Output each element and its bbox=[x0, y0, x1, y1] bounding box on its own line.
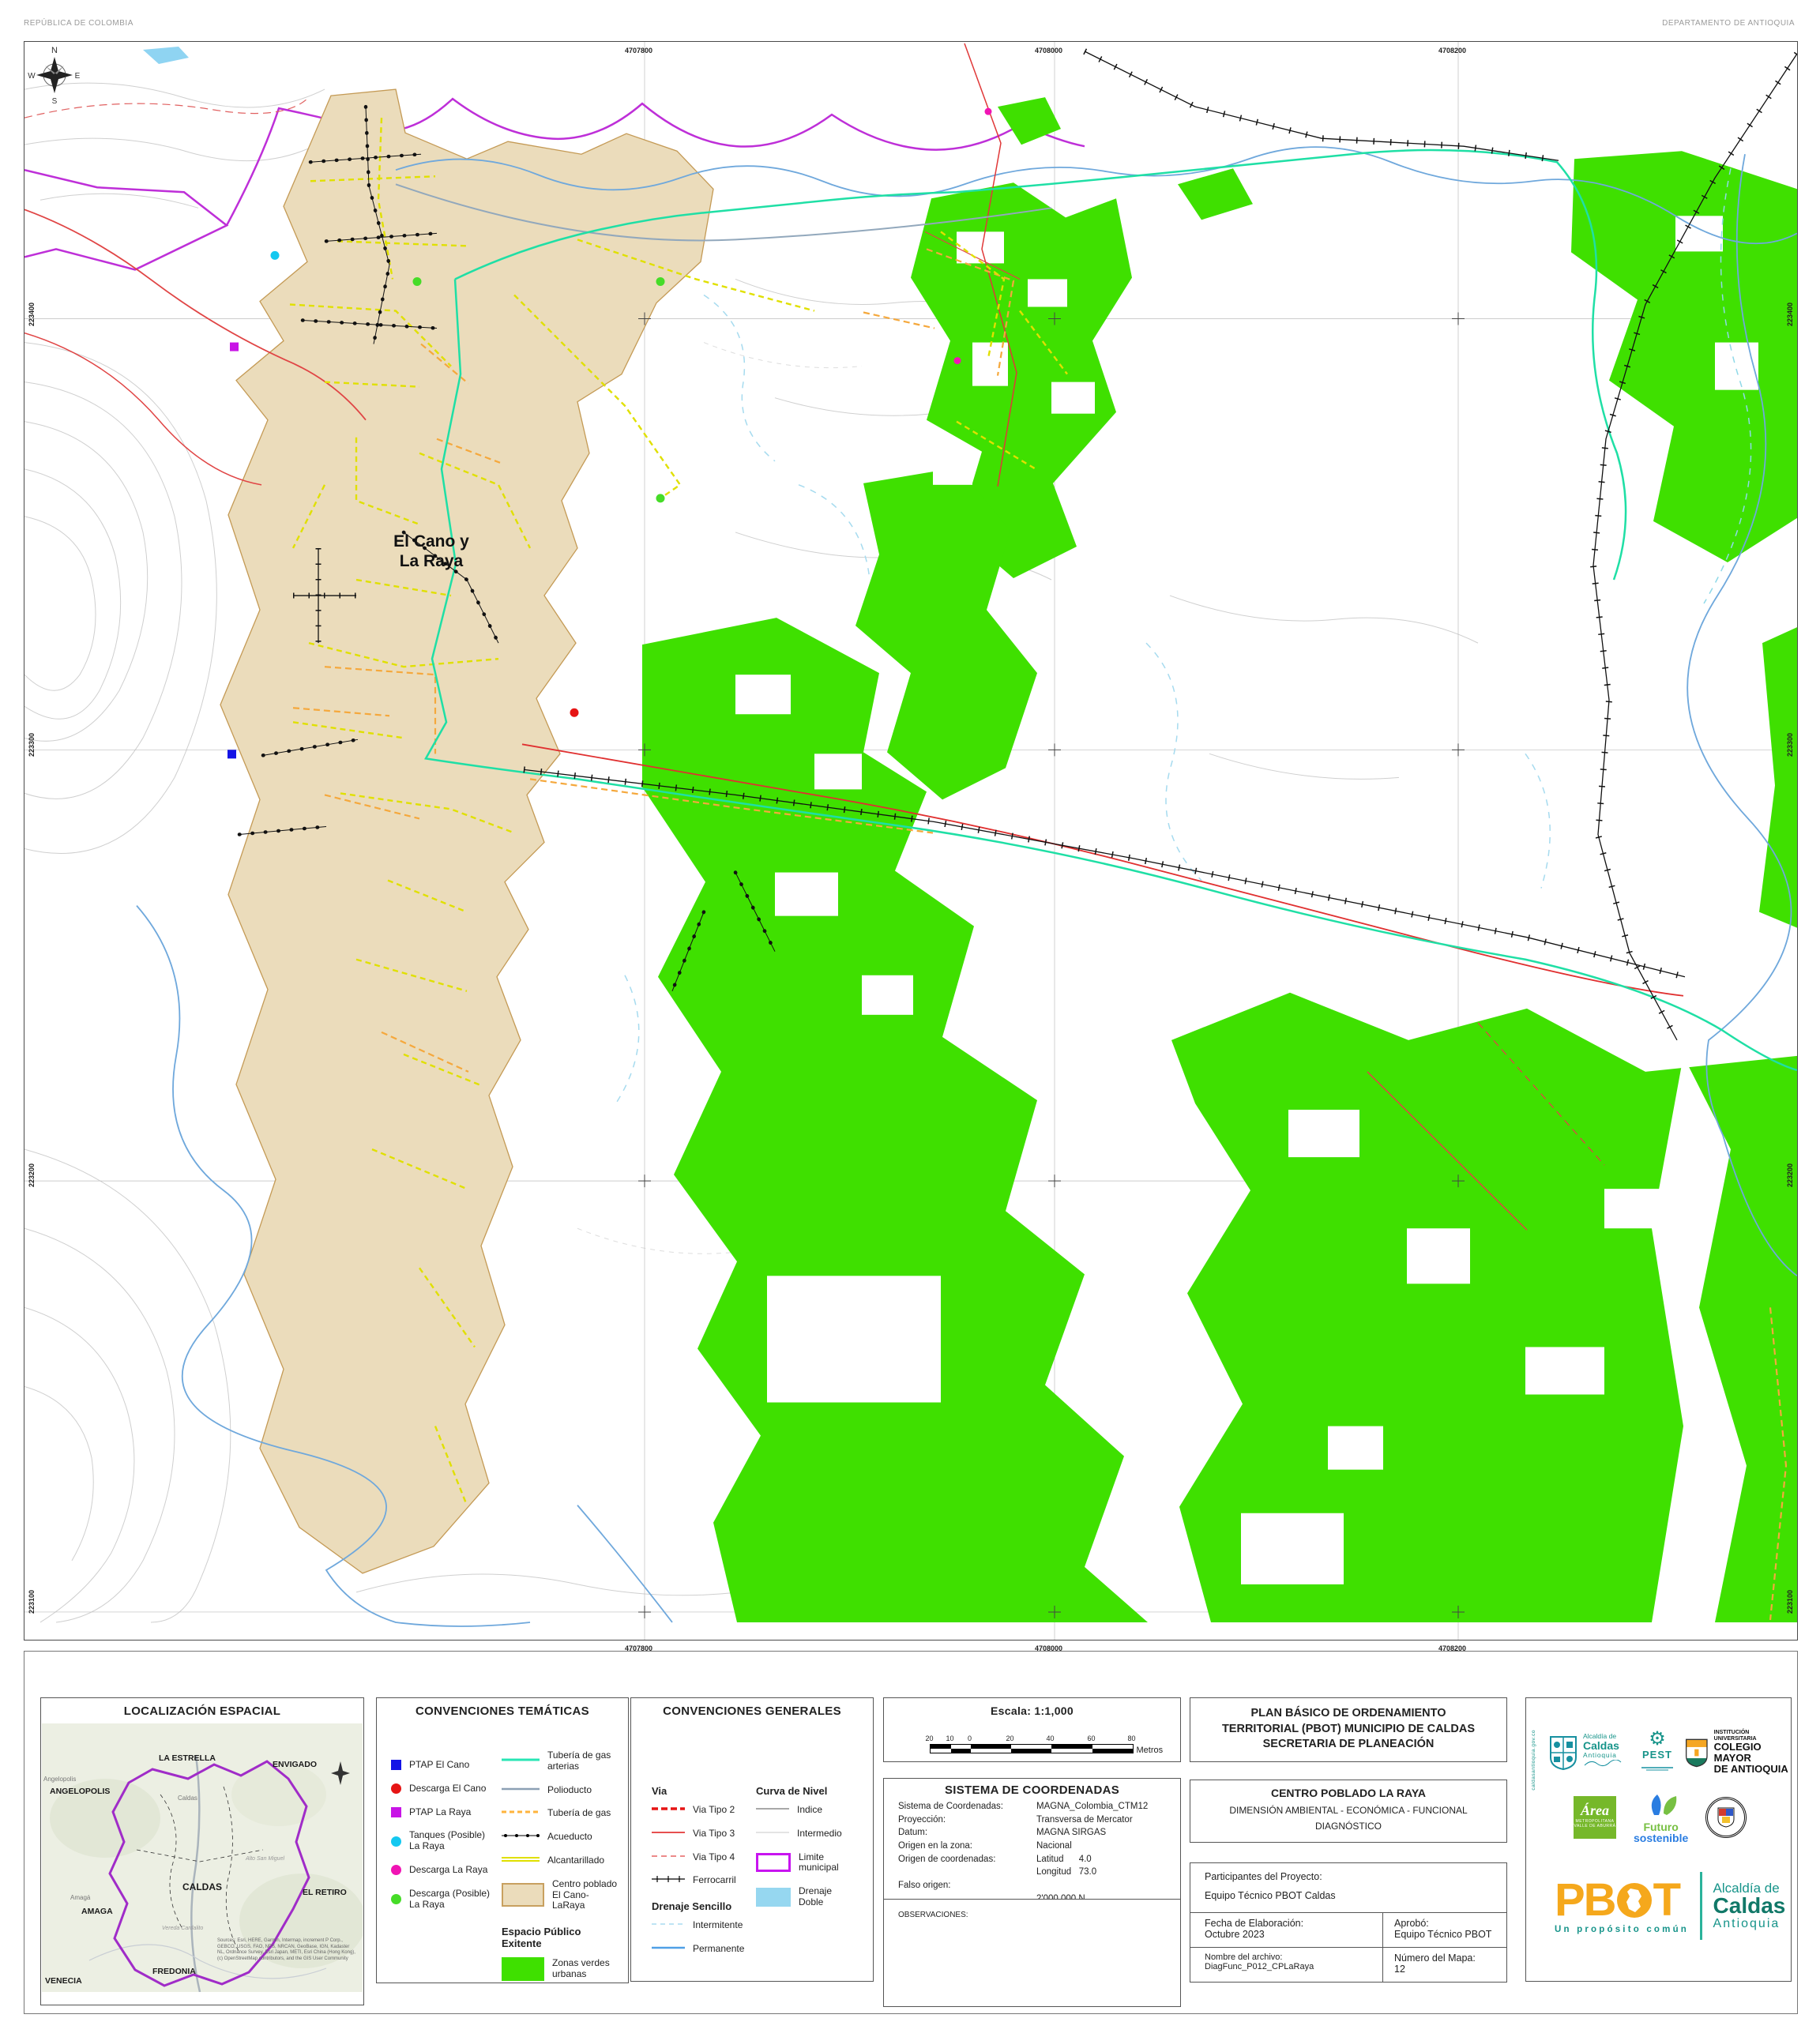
grid-label-top-1: 4707800 bbox=[625, 47, 652, 54]
diagnostico-subtitle: DIAGNÓSTICO bbox=[1190, 1816, 1506, 1832]
plan-title-box: PLAN BÁSICO DE ORDENAMIENTO TERRITORIAL … bbox=[1190, 1697, 1507, 1762]
signature-squiggle-icon bbox=[1583, 1760, 1630, 1768]
grid-label-right-3: 223200 bbox=[1786, 1163, 1794, 1187]
grid-label-left-4: 223100 bbox=[28, 1590, 36, 1614]
area-metropolitana-logo: Área METROPOLITANA VALLE DE ABURRÁ bbox=[1574, 1796, 1616, 1839]
observaciones-label: OBSERVACIONES: bbox=[884, 1900, 1180, 1919]
alcaldia-shield-icon bbox=[1548, 1734, 1578, 1771]
legend-item: Tubería de gas bbox=[502, 1808, 620, 1819]
curva-column: Curva de Nivel Indice Intermedio Limite … bbox=[756, 1777, 859, 1915]
localizacion-inset-map: LA ESTRELLA ENVIGADO ANGELOPOLIS Angelop… bbox=[42, 1723, 363, 1996]
legend-item: PTAP El Cano bbox=[391, 1760, 494, 1771]
inset-label-alto-san-miguel: Alto San Miguel bbox=[246, 1856, 284, 1862]
legend-item: Via Tipo 4 bbox=[652, 1852, 745, 1863]
ferrocarril-swatch bbox=[652, 1875, 685, 1886]
dimension-subtitle: DIMENSIÓN AMBIENTAL - ECONÓMICA - FUNCIO… bbox=[1190, 1799, 1506, 1816]
legend-item: Zonas verdes urbanas bbox=[502, 1957, 620, 1981]
inset-label-fredonia: FREDONIA bbox=[152, 1967, 196, 1976]
alcaldia-caldas-wordmark: Alcaldía de Caldas Antioquia bbox=[1713, 1881, 1786, 1930]
grid-label-top-2: 4708000 bbox=[1035, 47, 1062, 54]
participantes-value: Equipo Técnico PBOT Caldas bbox=[1190, 1882, 1506, 1901]
legend-item: Limite municipal bbox=[756, 1852, 859, 1874]
inset-label-amaga: AMAGA bbox=[81, 1907, 113, 1916]
grid-label-top-3: 4708200 bbox=[1438, 47, 1466, 54]
website-vertical-text: caldasantioquia.gov.co bbox=[1531, 1730, 1536, 1791]
via-tipo4-swatch bbox=[652, 1852, 685, 1863]
leaves-icon bbox=[1640, 1791, 1683, 1818]
pbot-o-map-icon bbox=[1616, 1882, 1653, 1919]
svg-text:E: E bbox=[75, 72, 81, 81]
legend-item: Permanente bbox=[652, 1944, 745, 1955]
grid-label-right-4: 223100 bbox=[1786, 1590, 1794, 1614]
aprobo-value: Equipo Técnico PBOT bbox=[1394, 1929, 1506, 1940]
inset-label-el-retiro: EL RETIRO bbox=[303, 1888, 347, 1897]
header-departamento: DEPARTAMENTO DE ANTIOQUIA bbox=[1662, 19, 1795, 28]
polioducto-swatch bbox=[502, 1785, 540, 1796]
logos-row-2: Área METROPOLITANA VALLE DE ABURRÁ Futur… bbox=[1574, 1791, 1747, 1843]
tematicas-lines-column: Tubería de gas arterias Polioducto Tuber… bbox=[502, 1744, 620, 1987]
map-canvas: N E S W El Cano y La Raya bbox=[24, 42, 1797, 1640]
espacio-publico-heading: Espacio Público Exitente bbox=[502, 1926, 620, 1949]
legend-item: Centro poblado El Cano-LaRaya bbox=[502, 1879, 620, 1911]
generales-title: CONVENCIONES GENERALES bbox=[631, 1698, 873, 1718]
marker-descarga-posible-1 bbox=[413, 277, 422, 286]
scale-bar-graphic bbox=[930, 1744, 1134, 1753]
water-polygon bbox=[143, 47, 189, 64]
descarga-posible-swatch bbox=[391, 1894, 401, 1904]
inset-label-caldas: CALDAS bbox=[182, 1881, 222, 1892]
legend-item: Drenaje Doble bbox=[756, 1886, 859, 1908]
drenaje-sencillo-heading: Drenaje Sencillo bbox=[652, 1900, 745, 1912]
ptap-la-raya-swatch bbox=[391, 1807, 401, 1817]
legend-item: Indice bbox=[756, 1805, 859, 1816]
pest-logo: ⚙ PEST bbox=[1641, 1730, 1673, 1775]
legend-item: Acueducto bbox=[502, 1832, 620, 1843]
inset-label-caldas-small: Caldas bbox=[178, 1795, 197, 1802]
convenciones-generales-box: CONVENCIONES GENERALES Via Via Tipo 2 Vi… bbox=[630, 1697, 874, 1982]
escala-box: Escala: 1:1,000 20 10 0 20 40 60 80 bbox=[883, 1697, 1181, 1762]
futuro-sostenible-logo: Futuro sostenible bbox=[1634, 1791, 1688, 1843]
grid-label-left-1: 223400 bbox=[28, 303, 36, 326]
marker-ptap-el-cano bbox=[227, 750, 236, 758]
via-heading: Via bbox=[652, 1785, 745, 1797]
inset-label-amaga-small: Amagá bbox=[70, 1894, 90, 1901]
scale-bar-unit: Metros bbox=[1137, 1746, 1164, 1755]
svg-text:El Cano y: El Cano y bbox=[393, 532, 469, 551]
numero-mapa-label: Número del Mapa: bbox=[1394, 1952, 1506, 1964]
gas-arterias-swatch bbox=[502, 1756, 540, 1767]
acueducto-swatch bbox=[502, 1832, 540, 1843]
descarga-el-cano-swatch bbox=[391, 1783, 401, 1794]
marker-descarga-la-raya-2 bbox=[954, 357, 961, 364]
marker-ptap-la-raya bbox=[230, 343, 239, 351]
plan-title-line2: TERRITORIAL (PBOT) MUNICIPIO DE CALDAS bbox=[1190, 1722, 1506, 1738]
legend-item: Descarga El Cano bbox=[391, 1783, 494, 1795]
pbot-logo: PBT Un propósito común Alcaldía de Calda… bbox=[1555, 1872, 1785, 1940]
legend-item: Tanques (Posible) La Raya bbox=[391, 1830, 494, 1852]
scale-bar-ticks: 20 10 0 20 40 60 80 bbox=[930, 1734, 1135, 1744]
header-republica: REPÚBLICA DE COLOMBIA bbox=[24, 19, 133, 28]
participantes-label: Participantes del Proyecto: bbox=[1190, 1863, 1506, 1882]
legend-item: Polioducto bbox=[502, 1785, 620, 1796]
plan-title-line1: PLAN BÁSICO DE ORDENAMIENTO bbox=[1190, 1706, 1506, 1722]
zonas-verdes-swatch bbox=[502, 1957, 544, 1981]
svg-text:W: W bbox=[28, 72, 36, 81]
colegio-mayor-logo: INSTITUCIÓN UNIVERSITARIA COLEGIO MAYOR … bbox=[1684, 1730, 1791, 1775]
legend-item: Intermedio bbox=[756, 1828, 859, 1840]
legend-item: Alcantarillado bbox=[502, 1855, 620, 1866]
svg-text:N: N bbox=[51, 46, 58, 55]
limite-municipal-swatch bbox=[756, 1853, 791, 1872]
marker-descarga-la-raya-1 bbox=[985, 108, 992, 115]
centro-poblado-title: CENTRO POBLADO LA RAYA bbox=[1190, 1780, 1506, 1799]
inset-sources-text: Sources: Esri, HERE, Garmin, Intermap, i… bbox=[217, 1938, 355, 1962]
plan-title-line3: SECRETARIA DE PLANEACIÓN bbox=[1190, 1737, 1506, 1753]
map-subject-box: CENTRO POBLADO LA RAYA DIMENSIÓN AMBIENT… bbox=[1190, 1780, 1507, 1843]
map-sheet: { "header": { "left": "REPÚBLICA DE COLO… bbox=[0, 0, 1820, 2022]
drenaje-doble-swatch bbox=[756, 1888, 791, 1907]
crest-shield-icon bbox=[1717, 1806, 1735, 1828]
legend-item: Intermitente bbox=[652, 1920, 745, 1931]
grid-label-right-1: 223400 bbox=[1786, 303, 1794, 326]
localizacion-title: LOCALIZACIÓN ESPACIAL bbox=[41, 1698, 363, 1718]
inset-label-venecia: VENECIA bbox=[45, 1976, 82, 1986]
inset-label-la-estrella: LA ESTRELLA bbox=[159, 1753, 216, 1763]
crest-logo bbox=[1705, 1797, 1747, 1838]
grid-label-right-2: 223300 bbox=[1786, 733, 1794, 757]
tematicas-points-column: PTAP El Cano Descarga El Cano PTAP La Ra… bbox=[391, 1753, 494, 1916]
archivo-label: Nombre del archivo: bbox=[1205, 1952, 1382, 1962]
credits-box: Participantes del Proyecto: Equipo Técni… bbox=[1190, 1862, 1507, 1983]
fecha-label: Fecha de Elaboración: bbox=[1205, 1918, 1382, 1929]
archivo-value: DiagFunc_P012_CPLaRaya bbox=[1205, 1962, 1382, 1971]
curva-heading: Curva de Nivel bbox=[756, 1785, 859, 1797]
convenciones-tematicas-box: CONVENCIONES TEMÁTICAS PTAP El Cano Desc… bbox=[376, 1697, 629, 1983]
numero-mapa-value: 12 bbox=[1394, 1964, 1506, 1975]
permanente-swatch bbox=[652, 1944, 685, 1955]
inset-label-angelopolis-small: Angelopolis bbox=[43, 1776, 76, 1783]
tuberia-gas-swatch bbox=[502, 1808, 540, 1819]
logos-row-1: Alcaldía de Caldas Antioquia ⚙ PEST bbox=[1548, 1730, 1791, 1775]
map-legend-panel: LOCALIZACIÓN ESPACIAL LA ESTRELLA ENVIGA… bbox=[24, 1651, 1798, 2014]
inset-label-envigado: ENVIGADO bbox=[273, 1760, 317, 1769]
svg-text:La Raya: La Raya bbox=[400, 552, 464, 570]
coordenadas-title: SISTEMA DE COORDENADAS bbox=[884, 1779, 1180, 1800]
pbot-tagline: Un propósito común bbox=[1555, 1925, 1689, 1934]
ptap-el-cano-swatch bbox=[391, 1760, 401, 1770]
centro-poblado-polygon bbox=[220, 89, 713, 1573]
legend-item: Ferrocarril bbox=[652, 1875, 745, 1886]
alcaldia-caldas-logo: Alcaldía de Caldas Antioquia bbox=[1548, 1733, 1630, 1772]
legend-item: Tubería de gas arterias bbox=[502, 1750, 620, 1772]
logos-box: caldasantioquia.gov.co Alcaldía de Calda… bbox=[1525, 1697, 1792, 1982]
marker-descarga-posible-3 bbox=[656, 494, 665, 502]
descarga-la-raya-swatch bbox=[391, 1865, 401, 1875]
main-map: N E S W El Cano y La Raya 4707800 470800… bbox=[24, 41, 1798, 1641]
grid-label-left-3: 223200 bbox=[28, 1163, 36, 1187]
via-tipo3-swatch bbox=[652, 1828, 685, 1840]
pbot-divider bbox=[1700, 1872, 1702, 1940]
intermitente-swatch bbox=[652, 1920, 685, 1931]
grid-label-left-2: 223300 bbox=[28, 733, 36, 757]
marker-tanques-la-raya bbox=[271, 251, 280, 260]
svg-text:S: S bbox=[52, 97, 58, 106]
aprobo-label: Aprobó: bbox=[1394, 1918, 1506, 1929]
fecha-value: Octubre 2023 bbox=[1205, 1929, 1382, 1940]
vias-column: Via Via Tipo 2 Via Tipo 3 Via Tipo 4 Fer… bbox=[652, 1777, 745, 1961]
pest-underline-icon bbox=[1641, 1766, 1673, 1771]
indice-swatch bbox=[756, 1805, 789, 1816]
escala-title: Escala: 1:1,000 bbox=[884, 1698, 1180, 1717]
marker-descarga-el-cano bbox=[570, 708, 579, 717]
localizacion-box: LOCALIZACIÓN ESPACIAL LA ESTRELLA ENVIGA… bbox=[40, 1697, 364, 2005]
compass-rose-icon: N E S W bbox=[28, 46, 80, 106]
pbot-wordmark: PBT bbox=[1555, 1877, 1689, 1923]
colegio-shield-icon bbox=[1684, 1735, 1709, 1770]
scale-bar: 20 10 0 20 40 60 80 Met bbox=[930, 1734, 1135, 1753]
observaciones-box: OBSERVACIONES: bbox=[883, 1899, 1181, 2007]
inset-label-angelopolis: ANGELOPOLIS bbox=[50, 1787, 110, 1796]
legend-item: Descarga La Raya bbox=[391, 1865, 494, 1876]
legend-item: Via Tipo 3 bbox=[652, 1828, 745, 1840]
legend-item: Via Tipo 2 bbox=[652, 1805, 745, 1816]
intermedio-swatch bbox=[756, 1828, 789, 1840]
legend-item: PTAP La Raya bbox=[391, 1807, 494, 1818]
via-tipo2-swatch bbox=[652, 1805, 685, 1816]
centro-poblado-swatch bbox=[502, 1883, 544, 1907]
tanques-la-raya-swatch bbox=[391, 1836, 401, 1847]
alcantarillado-swatch bbox=[502, 1855, 540, 1866]
marker-descarga-posible-2 bbox=[656, 277, 665, 286]
inset-label-vereda-cardalito: Vereda Cardalito bbox=[162, 1926, 203, 1931]
legend-item: Descarga (Posible) La Raya bbox=[391, 1889, 494, 1911]
tematicas-title: CONVENCIONES TEMÁTICAS bbox=[377, 1698, 628, 1718]
gear-icon: ⚙ bbox=[1641, 1730, 1673, 1749]
sistema-coordenadas-box: SISTEMA DE COORDENADAS Sistema de Coorde… bbox=[883, 1778, 1181, 1900]
